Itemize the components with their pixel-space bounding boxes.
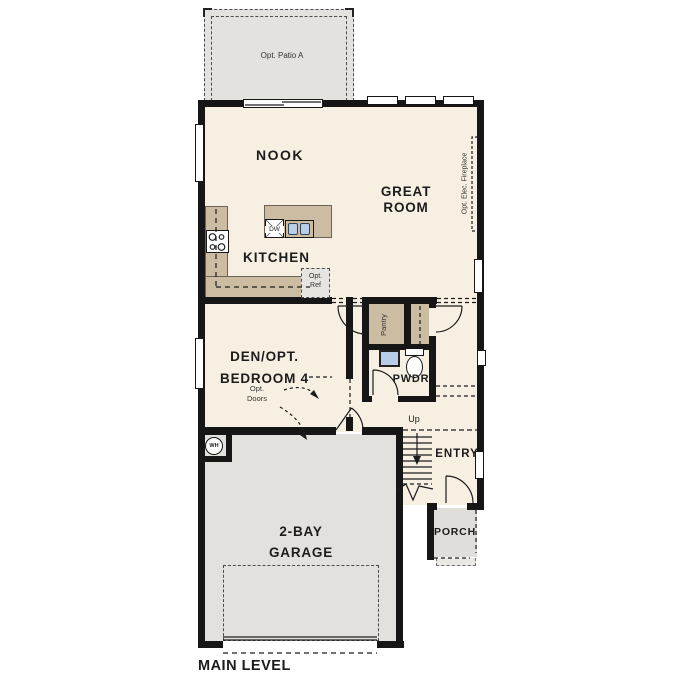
garage-door-opening [223,641,377,648]
wall-den-bottom-left [198,427,336,435]
label-opt-ref-line2: Ref [301,281,330,290]
label-entry: ENTRY [433,448,481,461]
wall-pwdr-bottom-left [362,396,372,402]
label-main-level: MAIN LEVEL [198,658,318,675]
label-great-room-line2: ROOM [365,200,447,216]
label-opt-patio: Opt. Patio A [238,51,326,60]
label-dw: DW [265,226,284,233]
entry-floor [399,424,479,505]
wall-pantry-divider [404,297,411,349]
coat-closet-shelf [411,304,429,344]
wall-closet-right-top [429,297,436,308]
patio-corner-tick-right [345,8,354,17]
kitchen-counter-bottom [205,276,312,298]
label-great-room-line1: GREAT [365,184,447,200]
label-porch: PORCH [431,526,479,538]
wall-garage-right [396,427,403,648]
label-garage: 2-BAY GARAGE [249,521,353,563]
wall-den-right-bottom [346,417,353,431]
island-sink-basin-left [288,223,298,235]
label-opt-ref-line1: Opt. [301,272,330,281]
window-top-1 [367,96,398,105]
window-top-3 [443,96,474,105]
label-garage-line1: 2-BAY [249,521,353,542]
floor-plan: WH [0,0,687,687]
patio-corner-tick-left [203,8,212,17]
toilet-tank [405,348,424,356]
label-den-line1: DEN/OPT. [197,346,332,368]
island-sink-basin-right [300,223,310,235]
window-greatroom-right [474,259,483,293]
label-opt-fireplace: Opt. Elec. Fireplace [462,137,473,231]
slider-door-nook [243,99,323,108]
label-pantry: Pantry [379,303,391,347]
porch-step [436,558,476,566]
garage-door-dashed [223,565,379,641]
wall-wh-bottom [204,456,232,462]
label-pwdr: PWDR [386,373,436,386]
label-opt-ref: Opt. Ref [301,272,330,290]
wall-top [198,100,484,107]
window-top-2 [405,96,436,105]
wall-pwdr-bottom-right [398,396,436,402]
label-up: Up [403,414,425,424]
label-opt-doors: Opt. Doors [235,384,279,404]
label-opt-doors-line1: Opt. [235,384,279,394]
label-kitchen: KITCHEN [234,250,319,266]
label-nook: NOOK [240,147,320,163]
water-heater: WH [205,437,223,455]
window-nook-left [195,124,204,182]
label-great-room: GREAT ROOM [365,184,447,215]
stove [206,230,229,253]
label-opt-doors-line2: Doors [235,394,279,404]
cased-opening-east [437,297,477,304]
window-hall-right-small [477,350,486,366]
pwdr-sink [379,350,400,367]
wall-porch-top-right [467,503,481,510]
label-garage-line2: GARAGE [249,542,353,563]
wall-den-right-top [346,297,353,379]
